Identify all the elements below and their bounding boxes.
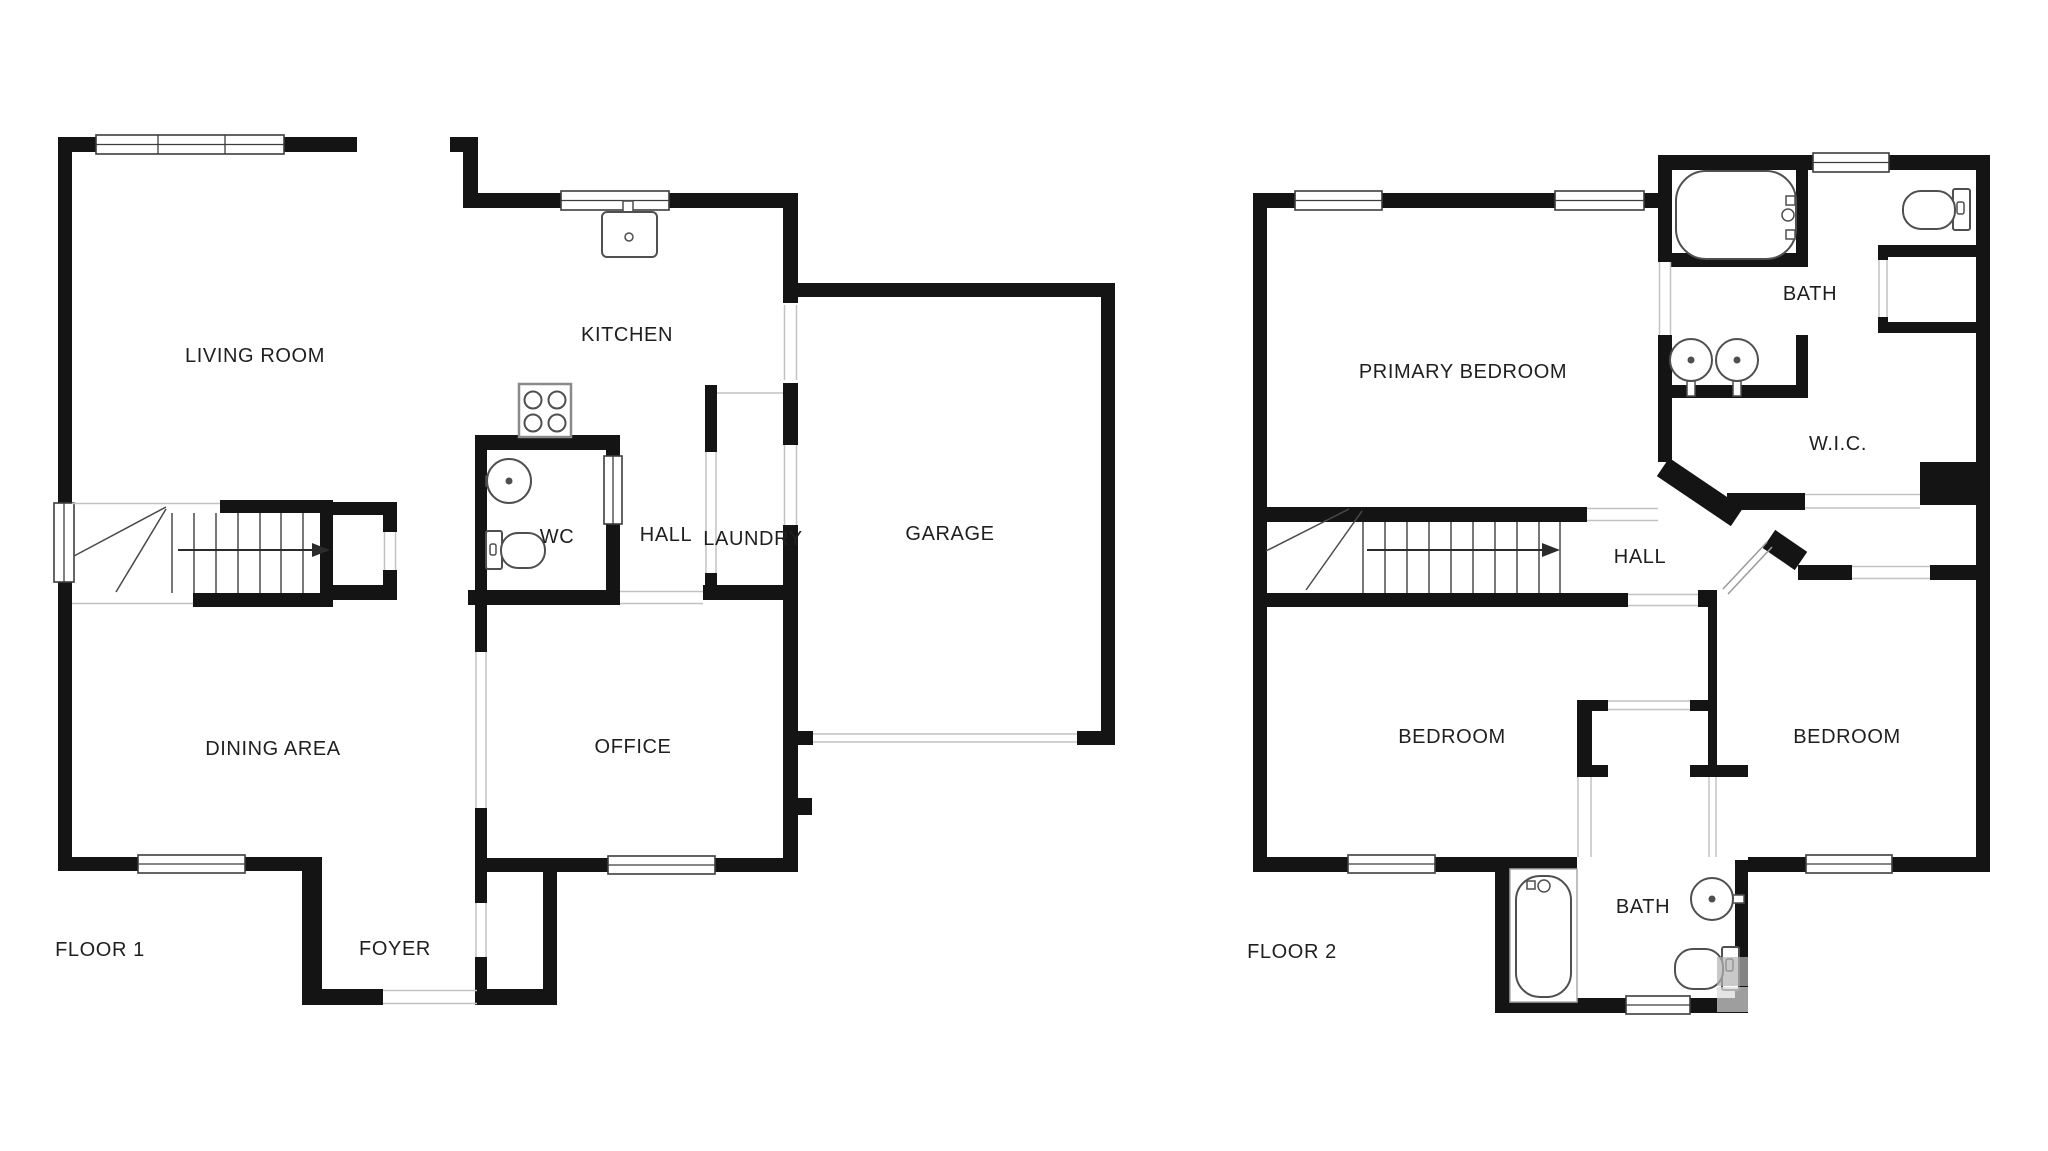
window	[1295, 191, 1382, 210]
room-label-bath-upper: BATH	[1783, 283, 1837, 305]
wall	[797, 283, 1115, 297]
wall	[606, 435, 620, 458]
room-label-office: OFFICE	[595, 736, 672, 758]
wall	[1708, 600, 1717, 777]
wall	[705, 385, 717, 452]
wall	[302, 989, 383, 1005]
angled-wall	[1769, 539, 1801, 561]
room-label-primary-bedroom: PRIMARY BEDROOM	[1359, 361, 1567, 383]
wall	[543, 872, 557, 1005]
room-label-living-room: LIVING ROOM	[185, 345, 325, 367]
bathtub-icon-lower	[1510, 869, 1577, 1002]
stairs-direction-arrow	[1367, 543, 1560, 557]
room-label-wic: W.I.C.	[1809, 433, 1867, 455]
window	[1626, 996, 1690, 1014]
room-label-garage: GARAGE	[905, 523, 994, 545]
wall	[783, 383, 798, 445]
wall	[1930, 565, 1977, 580]
wall	[1577, 700, 1592, 777]
room-label-hall-f2: HALL	[1614, 546, 1666, 568]
window	[604, 456, 622, 524]
wall	[1796, 335, 1808, 398]
window	[1555, 191, 1644, 210]
wall	[302, 857, 322, 1005]
wall	[475, 808, 487, 903]
floor2-title: FLOOR 2	[1247, 941, 1337, 963]
wall	[1262, 507, 1587, 522]
floor1-plan: LIVING ROOM KITCHEN WC HALL LAUNDRY GARA…	[54, 135, 1115, 1005]
window	[1806, 855, 1892, 873]
window	[1813, 153, 1889, 172]
wall	[1253, 193, 1267, 872]
wall	[1748, 857, 1808, 872]
wall	[1920, 462, 1990, 505]
wall	[1878, 245, 1888, 260]
floor1-stairs	[74, 507, 330, 593]
bathtub-icon-upper	[1676, 171, 1796, 259]
floor1-title: FLOOR 1	[55, 939, 145, 961]
wall	[783, 193, 798, 303]
room-label-foyer: FOYER	[359, 938, 431, 960]
wall	[1976, 155, 1990, 872]
floor2-plan: PRIMARY BEDROOM BATH W.I.C. HALL BEDROOM…	[1247, 153, 1990, 1014]
wc-sink-icon	[486, 459, 531, 503]
wall	[1887, 155, 1980, 170]
room-label-bedroom-right: BEDROOM	[1793, 726, 1901, 748]
window	[608, 856, 715, 874]
wall	[243, 857, 310, 871]
wall	[1878, 245, 1980, 257]
wall	[450, 137, 478, 152]
angled-wall	[1663, 467, 1737, 517]
stairs-direction-arrow	[178, 543, 330, 557]
wall	[1658, 155, 1815, 170]
wall	[1890, 857, 1990, 872]
wall	[1658, 170, 1672, 262]
floorplan-svg: LIVING ROOM KITCHEN WC HALL LAUNDRY GARA…	[0, 0, 2048, 1151]
wall	[1796, 167, 1808, 267]
room-label-laundry: LAUNDRY	[703, 528, 802, 550]
window	[561, 191, 669, 210]
toilet-icon-upper	[1903, 189, 1970, 230]
wall	[475, 858, 610, 872]
wall	[1798, 565, 1852, 580]
wall	[1101, 283, 1115, 745]
wall	[282, 137, 357, 152]
room-label-wc: WC	[540, 526, 575, 548]
wall	[58, 857, 140, 871]
wall	[383, 570, 397, 600]
floor1-door-openings	[72, 305, 797, 1004]
wall	[705, 573, 717, 600]
floor1-windows	[54, 135, 1077, 874]
wall	[783, 525, 798, 872]
wall	[193, 593, 333, 607]
wall	[468, 590, 620, 605]
wall	[383, 502, 397, 532]
wall	[1592, 765, 1608, 777]
wall	[58, 137, 98, 152]
room-label-hall-f1: HALL	[640, 524, 692, 546]
wall	[1262, 593, 1628, 607]
stove-icon	[519, 384, 571, 437]
window	[1348, 855, 1435, 873]
wall	[713, 858, 795, 872]
window	[54, 503, 74, 582]
wall	[667, 193, 797, 208]
wall	[1878, 317, 1888, 333]
window	[96, 135, 284, 154]
wall	[1690, 765, 1748, 777]
wall	[220, 500, 333, 513]
window	[138, 855, 245, 873]
floorplan-canvas: LIVING ROOM KITCHEN WC HALL LAUNDRY GARA…	[0, 0, 2048, 1151]
room-label-bedroom-left: BEDROOM	[1398, 726, 1506, 748]
room-label-dining-area: DINING AREA	[205, 738, 341, 760]
wall	[795, 798, 812, 815]
wall	[1495, 860, 1510, 1013]
wall	[1380, 193, 1557, 208]
wall	[1253, 193, 1297, 208]
wc-toilet-icon	[486, 531, 545, 569]
wall	[797, 731, 813, 745]
wall	[1267, 857, 1350, 872]
wall	[1077, 731, 1115, 745]
wall	[606, 522, 620, 595]
room-label-bath-lower: BATH	[1616, 896, 1670, 918]
door-leaf	[1723, 542, 1772, 594]
wall	[478, 193, 563, 208]
garage-door	[813, 731, 1077, 745]
wall	[1888, 322, 1980, 333]
room-label-kitchen: KITCHEN	[581, 324, 673, 346]
watermark	[1717, 957, 1748, 1012]
wall	[475, 957, 487, 1005]
wall	[463, 152, 478, 208]
